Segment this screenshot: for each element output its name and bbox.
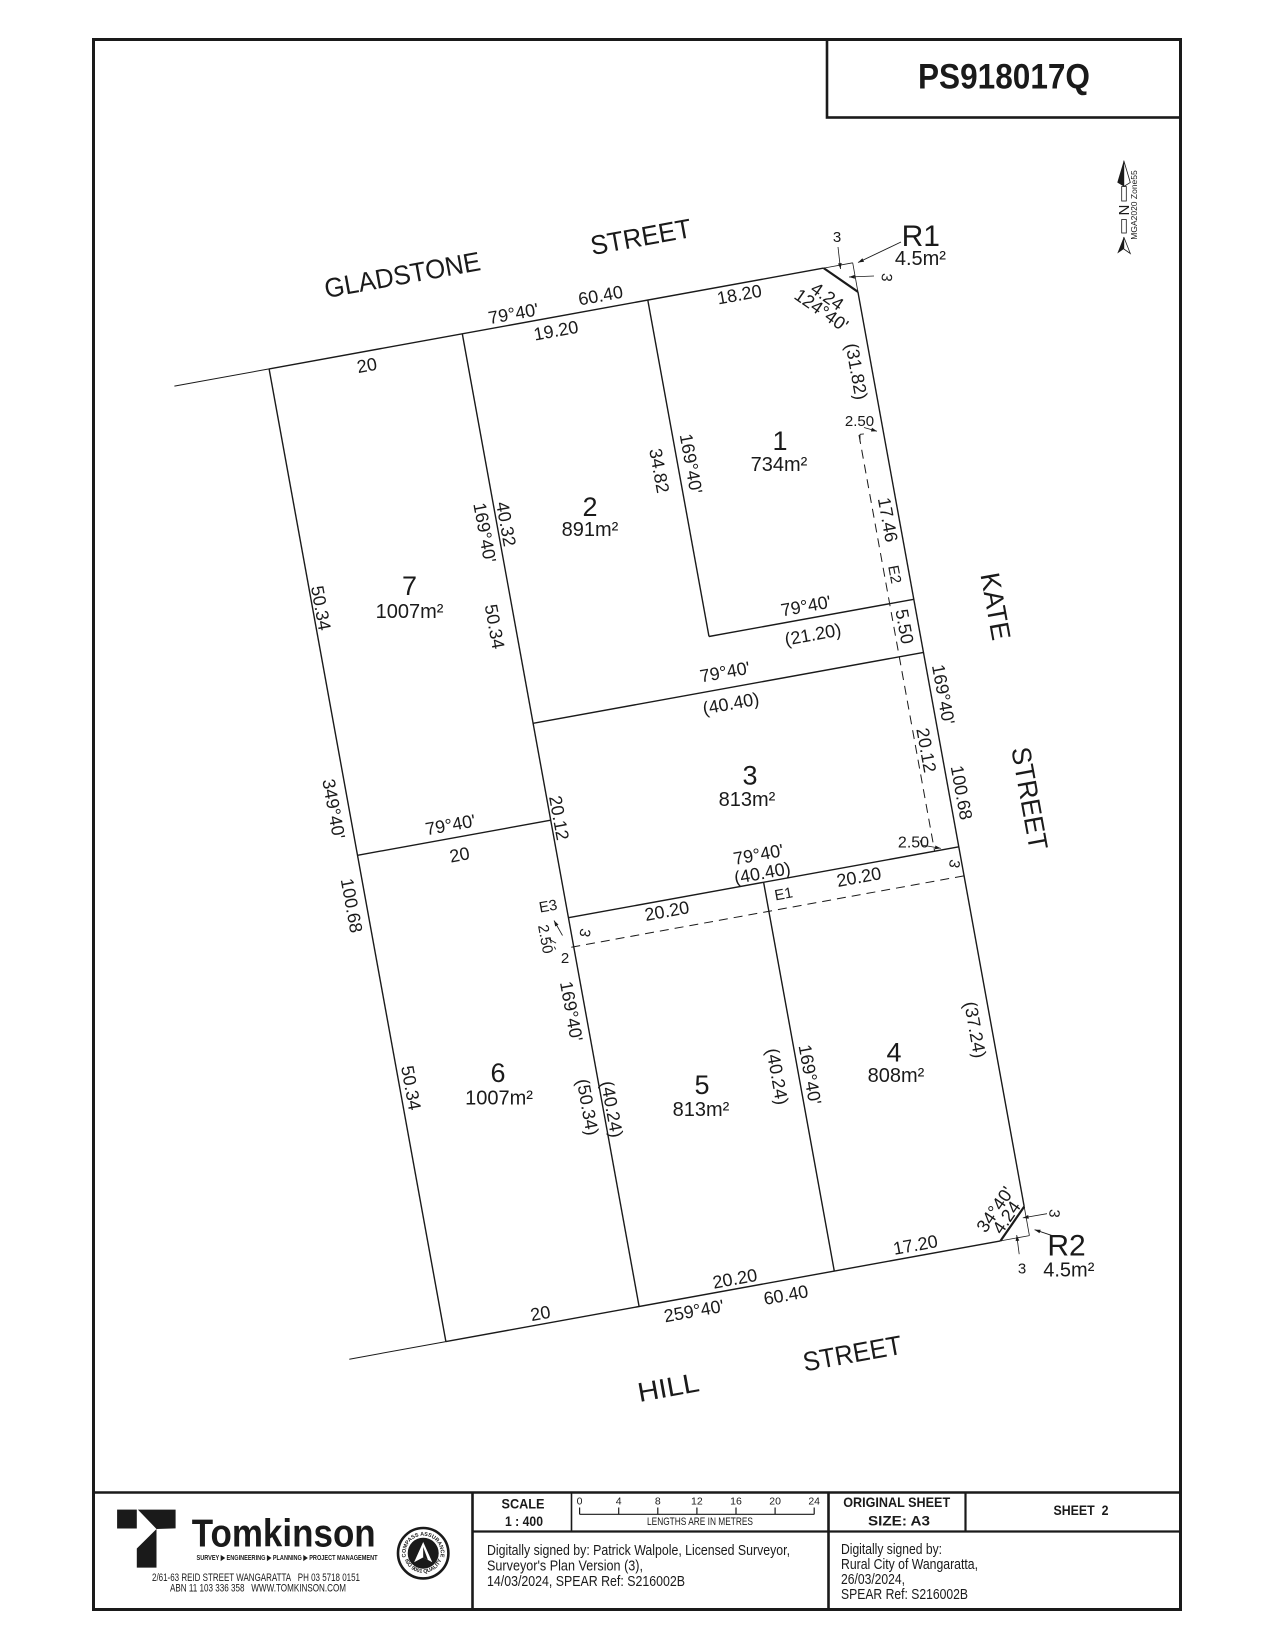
- svg-text:14/03/2024, SPEAR Ref: S216002: 14/03/2024, SPEAR Ref: S216002B: [487, 1574, 685, 1590]
- svg-text:4.5m²: 4.5m²: [1043, 1260, 1094, 1282]
- svg-text:813m²: 813m²: [719, 789, 776, 811]
- svg-text:6: 6: [490, 1058, 505, 1088]
- svg-text:0: 0: [577, 1496, 583, 1508]
- svg-text:4: 4: [616, 1496, 622, 1508]
- svg-text:MGA2020 Zone55: MGA2020 Zone55: [1129, 170, 1139, 240]
- svg-text:1 : 400: 1 : 400: [505, 1513, 543, 1529]
- svg-text:891m²: 891m²: [562, 519, 619, 541]
- svg-text:4.5m²: 4.5m²: [895, 248, 946, 270]
- svg-text:Surveyor's Plan Version (3),: Surveyor's Plan Version (3),: [487, 1559, 643, 1575]
- svg-text:3: 3: [742, 761, 757, 791]
- svg-text:SPEAR Ref: S216002B: SPEAR Ref: S216002B: [841, 1587, 968, 1603]
- svg-text:E3: E3: [538, 897, 559, 917]
- svg-text:12: 12: [691, 1496, 703, 1508]
- svg-text:ABN 11 103 336 358 WWW.TOMKI: ABN 11 103 336 358 WWW.TOMKINSON.COM: [170, 1583, 346, 1595]
- svg-text:3: 3: [1045, 1208, 1063, 1218]
- svg-text:E1: E1: [773, 884, 794, 904]
- svg-text:2.50: 2.50: [845, 413, 874, 430]
- svg-text:LENGTHS ARE IN METRES: LENGTHS ARE IN METRES: [647, 1516, 753, 1528]
- svg-text:1007m²: 1007m²: [465, 1088, 533, 1110]
- svg-text:5: 5: [694, 1070, 709, 1100]
- svg-text:R2: R2: [1047, 1229, 1085, 1262]
- svg-text:2: 2: [582, 492, 597, 522]
- svg-text:808m²: 808m²: [868, 1065, 925, 1087]
- svg-text:SCALE: SCALE: [502, 1496, 545, 1512]
- svg-text:SHEET 2: SHEET 2: [1054, 1502, 1109, 1518]
- svg-text:PS918017Q: PS918017Q: [918, 58, 1090, 97]
- svg-text:ORIGINAL SHEET: ORIGINAL SHEET: [843, 1494, 950, 1510]
- svg-text:26/03/2024,: 26/03/2024,: [841, 1572, 905, 1588]
- svg-text:8: 8: [655, 1496, 661, 1508]
- svg-text:2: 2: [561, 950, 569, 967]
- svg-text:20: 20: [529, 1302, 552, 1325]
- svg-text:3: 3: [833, 229, 841, 246]
- svg-text:1007m²: 1007m²: [376, 601, 444, 623]
- svg-text:Tomkinson: Tomkinson: [192, 1512, 376, 1555]
- svg-text:734m²: 734m²: [751, 454, 808, 476]
- svg-text:SIZE: A3: SIZE: A3: [868, 1513, 930, 1529]
- svg-text:1: 1: [772, 426, 787, 456]
- svg-text:Digitally signed by: Patrick W: Digitally signed by: Patrick Walpole, Li…: [487, 1543, 790, 1559]
- svg-text:24: 24: [808, 1496, 820, 1508]
- svg-text:20: 20: [769, 1496, 781, 1508]
- svg-text:3: 3: [1018, 1261, 1026, 1278]
- svg-text:E2: E2: [884, 564, 904, 585]
- svg-text:2.50: 2.50: [898, 835, 929, 852]
- svg-text:813m²: 813m²: [673, 1099, 730, 1121]
- svg-text:4: 4: [886, 1038, 901, 1068]
- svg-text:SURVEY ▶ ENGINEERING ▶ PLANNIN: SURVEY ▶ ENGINEERING ▶ PLANNING ▶ PROJEC…: [197, 1553, 378, 1562]
- svg-text:20: 20: [355, 354, 378, 377]
- svg-text:Digitally signed by:: Digitally signed by:: [841, 1542, 942, 1558]
- svg-text:3: 3: [877, 272, 895, 282]
- svg-text:16: 16: [730, 1496, 742, 1508]
- svg-text:Rural City of Wangaratta,: Rural City of Wangaratta,: [841, 1557, 978, 1573]
- svg-text:20: 20: [448, 843, 471, 866]
- svg-text:7: 7: [402, 571, 417, 601]
